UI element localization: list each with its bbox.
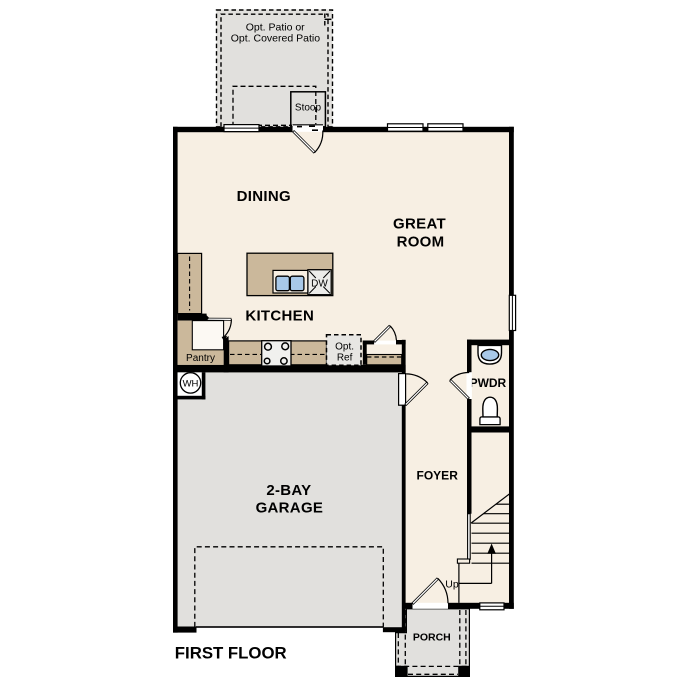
svg-text:Up: Up	[445, 578, 459, 590]
svg-text:Ref: Ref	[337, 352, 353, 363]
svg-text:GREAT: GREAT	[393, 216, 446, 233]
svg-text:DINING: DINING	[237, 188, 291, 205]
svg-text:WH: WH	[183, 378, 199, 389]
svg-text:FIRST FLOOR: FIRST FLOOR	[175, 643, 287, 662]
svg-text:FOYER: FOYER	[417, 469, 459, 483]
svg-text:Stoop: Stoop	[295, 102, 322, 113]
svg-text:ROOM: ROOM	[397, 234, 445, 251]
svg-text:GARAGE: GARAGE	[256, 499, 324, 516]
svg-text:DW: DW	[311, 279, 328, 290]
svg-text:Opt. Covered Patio: Opt. Covered Patio	[231, 32, 320, 44]
svg-text:PWDR: PWDR	[470, 376, 507, 390]
svg-text:KITCHEN: KITCHEN	[245, 307, 314, 324]
svg-text:Pantry: Pantry	[186, 353, 215, 364]
svg-text:PORCH: PORCH	[413, 632, 451, 644]
svg-text:Opt.: Opt.	[335, 341, 354, 352]
svg-text:2-BAY: 2-BAY	[266, 482, 311, 499]
